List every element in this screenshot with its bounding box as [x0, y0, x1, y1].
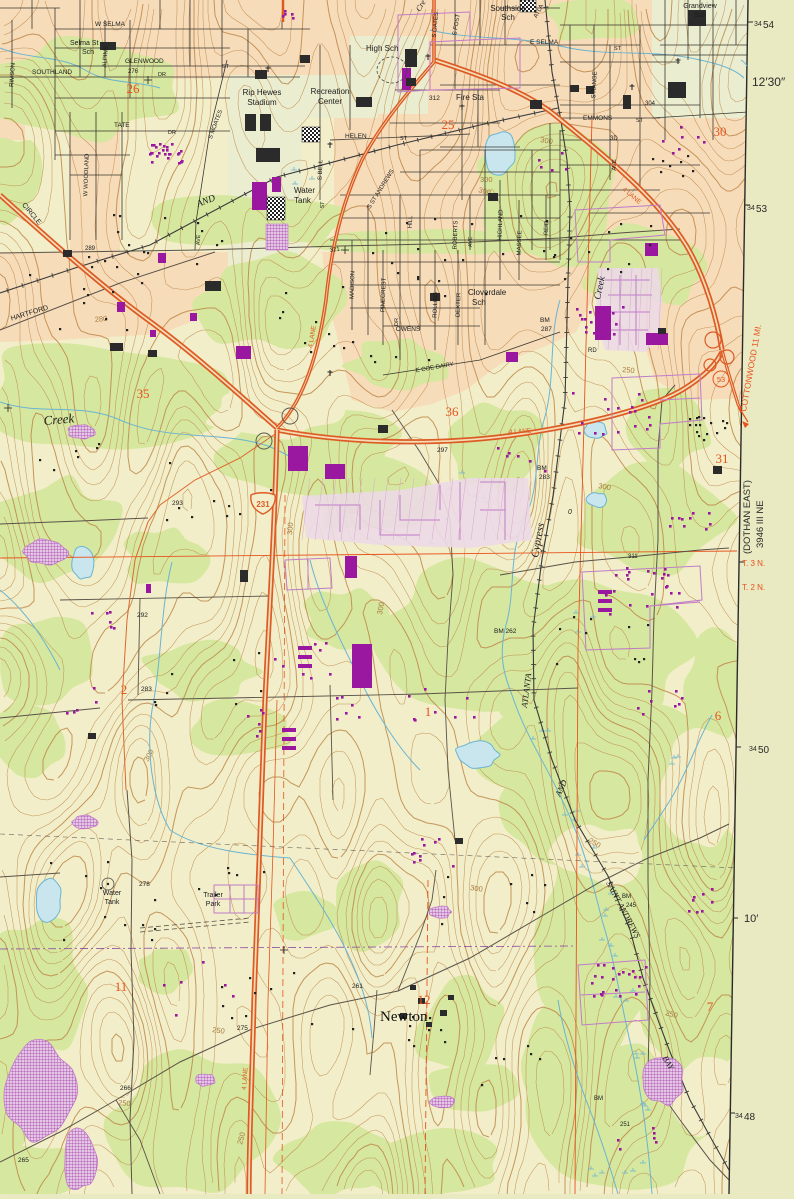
- svg-text:25: 25: [442, 117, 455, 132]
- svg-text:ROBERTS: ROBERTS: [452, 220, 459, 249]
- svg-text:278: 278: [139, 881, 150, 888]
- svg-text:OWENS: OWENS: [396, 326, 421, 333]
- svg-text:Water: Water: [103, 890, 122, 897]
- svg-text:BM: BM: [622, 894, 631, 900]
- svg-text:11: 11: [115, 979, 128, 994]
- svg-text:31: 31: [716, 451, 729, 466]
- svg-text:(DOTHAN EAST): (DOTHAN EAST): [742, 480, 753, 554]
- svg-text:3946 III NE: 3946 III NE: [755, 500, 766, 548]
- svg-text:E SELMA: E SELMA: [530, 39, 559, 46]
- svg-text:34: 34: [747, 205, 755, 212]
- svg-text:34: 34: [754, 21, 762, 28]
- svg-text:12: 12: [418, 992, 431, 1007]
- svg-text:283: 283: [141, 686, 152, 693]
- svg-text:RD: RD: [588, 348, 597, 354]
- svg-text:293: 293: [172, 500, 183, 507]
- svg-text:311: 311: [628, 554, 638, 560]
- svg-text:S BELL: S BELL: [318, 159, 325, 180]
- svg-text:250: 250: [622, 365, 635, 375]
- svg-text:48: 48: [744, 1112, 756, 1123]
- svg-text:HILL: HILL: [408, 215, 414, 229]
- svg-text:Creek: Creek: [43, 410, 75, 428]
- svg-text:Stadium: Stadium: [247, 98, 277, 107]
- svg-text:30: 30: [714, 124, 727, 139]
- svg-text:DR: DR: [394, 318, 400, 326]
- svg-text:MASSEE: MASSEE: [517, 230, 524, 255]
- svg-text:34: 34: [749, 746, 757, 753]
- svg-text:Tank: Tank: [105, 899, 120, 906]
- svg-text:10′: 10′: [744, 913, 758, 925]
- svg-text:T. 2 N.: T. 2 N.: [742, 583, 765, 592]
- svg-text:Newton: Newton: [380, 1009, 428, 1025]
- svg-text:T. 3 N.: T. 3 N.: [742, 559, 765, 568]
- svg-text:ST: ST: [320, 201, 326, 209]
- svg-text:Center: Center: [318, 97, 342, 106]
- svg-text:High Sch: High Sch: [366, 44, 398, 53]
- svg-text:EMMONS: EMMONS: [583, 115, 613, 122]
- svg-text:275: 275: [237, 1025, 248, 1032]
- svg-text:54: 54: [763, 20, 775, 31]
- svg-text:231: 231: [256, 500, 270, 509]
- svg-text:266: 266: [120, 1085, 131, 1092]
- svg-text:300: 300: [285, 522, 295, 535]
- svg-text:Sch: Sch: [694, 12, 706, 19]
- svg-text:250: 250: [212, 1025, 226, 1036]
- svg-text:312: 312: [429, 95, 440, 102]
- svg-text:26: 26: [127, 81, 141, 96]
- svg-text:Water: Water: [294, 186, 315, 195]
- svg-text:251: 251: [620, 1122, 631, 1128]
- svg-text:Southside: Southside: [490, 4, 526, 13]
- svg-text:34: 34: [735, 1113, 743, 1120]
- svg-text:53: 53: [717, 375, 725, 384]
- svg-text:PINECREST: PINECREST: [380, 277, 387, 312]
- svg-text:50: 50: [758, 745, 770, 756]
- svg-text:287: 287: [541, 326, 552, 333]
- svg-text:245: 245: [626, 903, 637, 909]
- svg-text:Rip Hewes: Rip Hewes: [243, 88, 282, 97]
- svg-text:265: 265: [18, 1157, 29, 1164]
- svg-text:W SELMA: W SELMA: [95, 21, 126, 28]
- svg-text:REID: REID: [544, 220, 551, 235]
- svg-text:36: 36: [446, 404, 460, 419]
- svg-text:DEXTER: DEXTER: [456, 292, 463, 317]
- svg-text:Recreation: Recreation: [311, 87, 350, 96]
- svg-text:DR: DR: [168, 130, 176, 136]
- svg-text:276: 276: [128, 69, 139, 75]
- svg-text:BM: BM: [540, 317, 550, 324]
- svg-text:AVE: AVE: [612, 159, 618, 171]
- svg-text:Tank: Tank: [294, 196, 312, 205]
- svg-text:DR: DR: [158, 72, 166, 78]
- svg-text:BM: BM: [594, 1096, 603, 1102]
- svg-text:ST: ST: [636, 118, 644, 124]
- svg-text:GLENWOOD: GLENWOOD: [125, 58, 164, 65]
- svg-text:Grandview: Grandview: [683, 3, 717, 10]
- svg-text:35: 35: [137, 386, 150, 401]
- svg-text:AVE: AVE: [196, 234, 202, 245]
- svg-text:Fire Sta: Fire Sta: [456, 93, 485, 102]
- svg-text:HIGHLAND: HIGHLAND: [497, 209, 504, 241]
- svg-text:ST: ST: [400, 136, 408, 142]
- svg-text:MADISON: MADISON: [350, 271, 357, 299]
- svg-text:7: 7: [707, 999, 714, 1014]
- svg-text:BM 262: BM 262: [494, 628, 517, 635]
- svg-text:2: 2: [121, 682, 128, 697]
- svg-text:Park: Park: [206, 901, 221, 908]
- svg-text:Sch: Sch: [472, 298, 486, 307]
- svg-text:ROLLINS: ROLLINS: [433, 292, 440, 318]
- svg-text:283: 283: [539, 474, 550, 481]
- svg-text:TATE: TATE: [114, 122, 130, 129]
- svg-text:Sch: Sch: [501, 13, 515, 22]
- svg-text:Trailer: Trailer: [203, 892, 223, 899]
- svg-text:261: 261: [352, 983, 363, 990]
- svg-text:0: 0: [568, 509, 572, 516]
- svg-text:ST: ST: [614, 46, 622, 52]
- svg-text:289: 289: [85, 246, 96, 252]
- svg-text:53: 53: [756, 204, 768, 215]
- svg-text:297: 297: [437, 447, 448, 454]
- svg-text:SOUTHLAND: SOUTHLAND: [32, 69, 72, 76]
- svg-text:304: 304: [645, 101, 656, 107]
- svg-text:Sch: Sch: [82, 49, 94, 56]
- svg-text:Cloverdale: Cloverdale: [468, 288, 507, 297]
- svg-text:ST: ST: [222, 64, 230, 70]
- svg-text:AVE: AVE: [468, 236, 474, 247]
- svg-text:Selma St: Selma St: [70, 40, 98, 47]
- svg-text:1: 1: [425, 704, 432, 719]
- svg-text:300: 300: [470, 883, 484, 894]
- svg-text:HELEN: HELEN: [345, 133, 367, 140]
- svg-text:BM: BM: [537, 465, 547, 472]
- svg-text:292: 292: [137, 612, 148, 619]
- svg-text:12′30″: 12′30″: [752, 75, 786, 89]
- svg-text:300: 300: [480, 175, 493, 184]
- svg-text:6: 6: [715, 708, 722, 723]
- svg-text:3D: 3D: [610, 136, 618, 142]
